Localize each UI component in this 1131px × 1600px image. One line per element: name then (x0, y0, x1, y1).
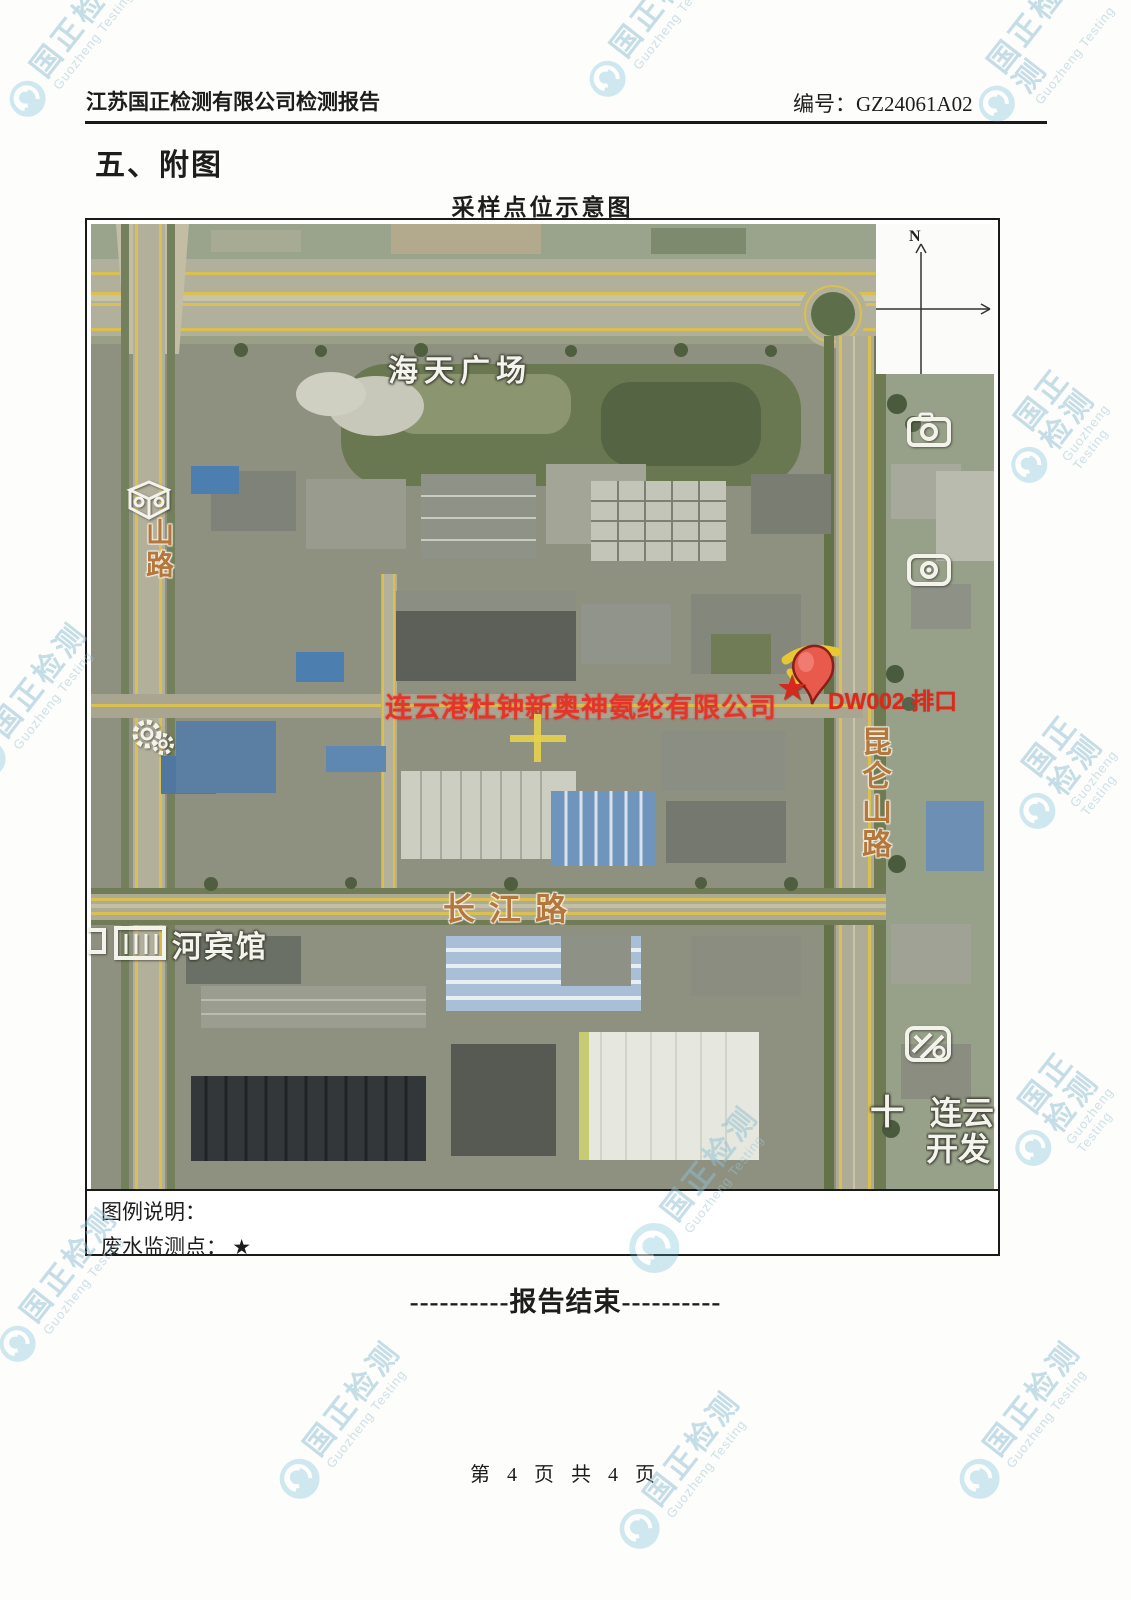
compass-north-label: N (909, 228, 921, 246)
satellite-map-image (91, 224, 994, 1189)
legend-title: 图例说明： (101, 1196, 984, 1226)
report-end-line: ----------报告结束---------- (0, 1280, 1131, 1319)
watermark-cn: 国正检测 (26, 0, 135, 84)
watermark-stamp: 国正检测Guozheng Testing (986, 1029, 1131, 1192)
watermark-cn: 国正检测 (1018, 696, 1120, 802)
watermark-en: Guozheng Testing (630, 0, 724, 72)
watermark-stamp: 国正检测Guozheng Testing (990, 696, 1131, 855)
section-title: 五、附图 (95, 140, 223, 184)
watermark-en: Guozheng Testing (1004, 1355, 1098, 1471)
legend-item-label: 废水监测点： (101, 1235, 227, 1259)
watermark-en: Guozheng Testing (1064, 1068, 1131, 1156)
watermark-stamp: 国正检测Guozheng Testing (982, 342, 1131, 509)
guozheng-logo-icon (1005, 1120, 1061, 1176)
guozheng-logo-icon (1009, 783, 1065, 839)
watermark-cn: 国正检测 (299, 1335, 408, 1462)
watermark-en: Guozheng Testing (1059, 381, 1131, 473)
report-title: 江苏国正检测有限公司检测报告 (86, 86, 380, 116)
guozheng-logo-icon (579, 50, 635, 106)
page-number: 第 4 页 共 4 页 (0, 1458, 1131, 1487)
map-figure-title: 采样点位示意图 (85, 188, 1000, 222)
watermark-en: Guozheng Testing (1068, 735, 1131, 819)
legend-star-symbol: ★ (232, 1235, 251, 1259)
watermark-cn: 国正检测 (1010, 342, 1118, 456)
guozheng-logo-icon (0, 70, 55, 126)
watermark-cn: 国正检测 (979, 1335, 1088, 1462)
report-number-label: 编号： (793, 92, 856, 116)
watermark-cn: 国正检测 (983, 0, 1116, 99)
watermark-en: Guozheng Testing (50, 0, 144, 92)
guozheng-logo-icon (1001, 437, 1057, 493)
guozheng-logo-icon (608, 1498, 670, 1560)
sampling-map-frame: 图例说明： 废水监测点： ★ (85, 218, 1000, 1256)
watermark-cn: 国正检测 (639, 1385, 748, 1512)
watermark-cn: 国正检测 (0, 617, 94, 744)
guozheng-logo-icon (0, 730, 15, 786)
watermark-stamp: 国正检测Guozheng Testing (577, 0, 725, 108)
legend-item-wastewater: 废水监测点： ★ (101, 1231, 984, 1261)
report-number: 编号：GZ24061A02 (793, 88, 973, 118)
report-page: 国正检测Guozheng Testing 国正检测Guozheng Testin… (0, 0, 1131, 1600)
report-number-value: GZ24061A02 (856, 92, 973, 116)
legend-box: 图例说明： 废水监测点： ★ (87, 1189, 998, 1250)
header-divider (85, 121, 1047, 124)
watermark-en: Guozheng Testing (324, 1355, 418, 1471)
watermark-cn: 国正检测 (606, 0, 715, 64)
watermark-cn: 国正检测 (1014, 1029, 1119, 1139)
watermark-en: Guozheng Testing (1033, 0, 1127, 107)
guozheng-logo-icon (0, 1315, 45, 1371)
